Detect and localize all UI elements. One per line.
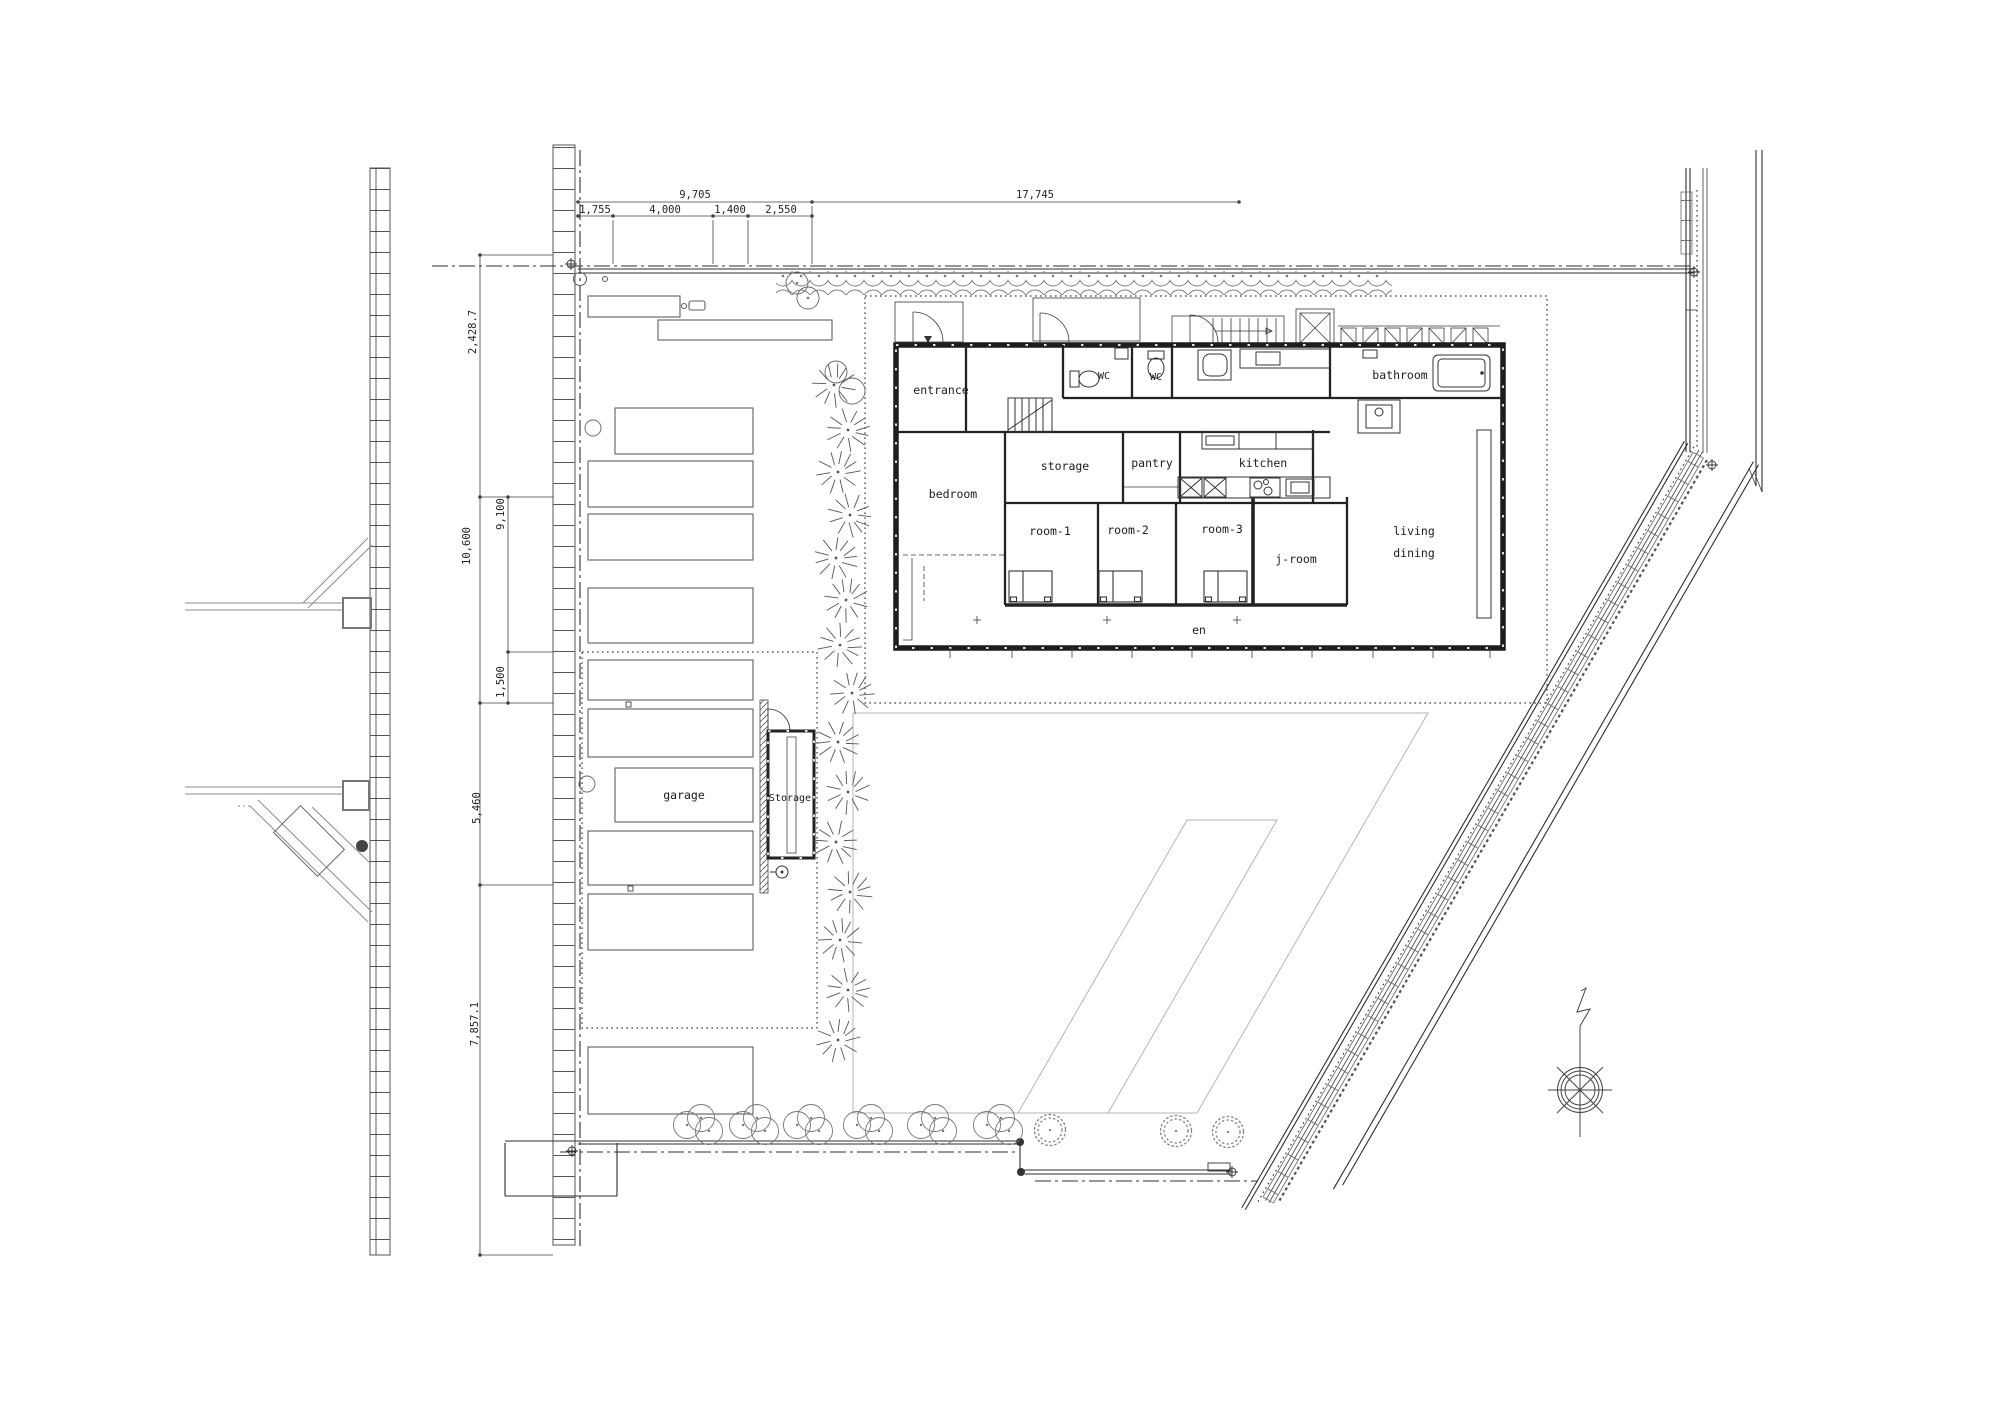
vanity-counter [1240,349,1330,368]
bath-shelf [1363,350,1377,358]
skylight-box [1296,309,1334,347]
entrance-porch [895,302,963,343]
parking-stall [588,1047,753,1114]
room-label-entrance: entrance [913,383,968,397]
room-label-wc-1: WC [1098,371,1110,382]
shed-door-swing [768,709,790,731]
storage-shed-label: Storage [769,793,811,804]
dim-left-4: 1,500 [495,666,507,698]
stove-box [1358,400,1400,433]
room-label-storage: storage [1041,459,1090,473]
tree-icon [585,420,601,436]
bed-icon [1204,571,1247,602]
washing-machine-icon [1198,350,1231,380]
north-arrow-icon [1577,988,1590,1026]
house-plan: entrance WC WC bathroom storage pantry k… [895,298,1503,658]
room-label-jroom: j-room [1275,552,1317,566]
side-door-swing [1040,313,1069,342]
dimension-top: 9,705 17,745 1,755 4,000 1,400 2,550 [576,189,1241,264]
stair-door-swing [1190,315,1218,343]
dim-top-seg-2: 4,000 [649,204,681,216]
parking-stall [588,660,753,700]
neighbor-fence-west [185,168,390,1255]
dim-left-6: 7,857.1 [469,1002,481,1046]
north-hedge-row [776,271,1392,309]
window-strip [1477,430,1491,618]
room-label-room1: room-1 [1029,524,1071,538]
room-label-en: en [1192,623,1206,637]
room-label-room3: room-3 [1201,522,1243,536]
wc-sink [1115,348,1128,359]
survey-marker [1226,1166,1238,1178]
lawn-edges [853,713,1428,1113]
toilet-icon [1070,371,1099,387]
interior-walls [896,345,1503,640]
north-canopy [1033,298,1140,342]
parking-yard-dotted-line [582,652,817,1028]
parking-stall [588,709,753,757]
parking-stall [588,588,753,643]
room-label-wc-2: WC [1150,372,1162,383]
dim-left-3: 9,100 [495,498,507,530]
bathtub-icon [1433,355,1490,391]
exterior-stairs [1172,315,1284,344]
utility-marker [356,840,368,852]
room-label-kitchen: kitchen [1239,456,1287,470]
dimension-left: 2,428.7 10,600 9,100 1,500 5,460 7,857.1 [461,253,553,1257]
dim-top-total-left: 9,705 [679,189,711,201]
compass-icon [1548,988,1612,1137]
room-label-pantry: pantry [1131,456,1173,470]
parking-stall [588,831,753,885]
dim-left-2: 10,600 [461,527,473,565]
room-label-dining: dining [1393,546,1435,560]
parking-stall [588,894,753,950]
room-label-living: living [1393,524,1435,538]
room-label-room2: room-2 [1107,523,1149,537]
vanity-sink [1256,352,1280,365]
north-deck-posts [1338,326,1500,344]
parking-stall [588,514,753,560]
parking-area [574,273,833,1115]
dim-left-5: 5,460 [471,792,483,824]
south-boundary [505,1138,1258,1196]
dim-top-seg-4: 2,550 [765,204,797,216]
slope-hatch-line [1278,460,1707,1203]
site-plan-page: 9,705 17,745 1,755 4,000 1,400 2,550 2,4… [0,0,2000,1415]
garage-label: garage [663,788,705,802]
dim-top-total-right: 17,745 [1016,189,1054,201]
interior-stairs [1008,398,1052,432]
room-label-bathroom: bathroom [1372,368,1427,382]
parking-stall [588,461,753,507]
east-road [1242,150,1762,1246]
bed-icon [1009,571,1052,602]
dim-top-seg-1: 1,755 [579,204,611,216]
room-label-bedroom: bedroom [929,487,978,501]
site-plan-drawing: 9,705 17,745 1,755 4,000 1,400 2,550 2,4… [0,0,2000,1415]
west-boundary-wall [553,145,580,1250]
parking-stall [615,408,753,454]
bollard-icon [682,304,687,309]
bed-icon [1099,571,1142,602]
dim-top-seg-3: 1,400 [714,204,746,216]
dim-left-1: 2,428.7 [467,310,479,354]
